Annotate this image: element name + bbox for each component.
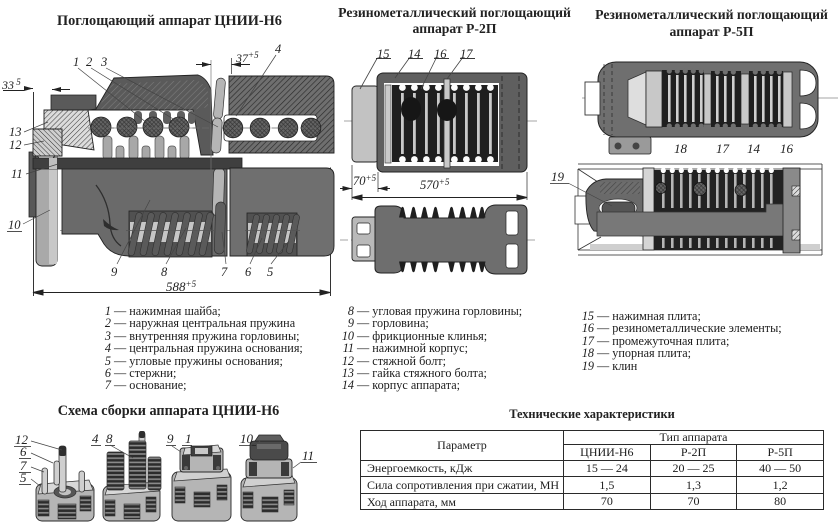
svg-text:18: 18 <box>674 141 688 156</box>
svg-text:3: 3 <box>100 55 107 69</box>
svg-text:8: 8 <box>106 431 113 446</box>
svg-text:16: 16 <box>780 141 794 156</box>
svg-text:14: 14 <box>747 141 761 156</box>
svg-text:9: 9 <box>167 431 174 446</box>
svg-text:11: 11 <box>302 448 314 463</box>
svg-text:2: 2 <box>86 55 92 69</box>
svg-text:8: 8 <box>161 265 168 279</box>
svg-text:10: 10 <box>240 431 254 446</box>
svg-text:6: 6 <box>245 265 252 279</box>
svg-text:4: 4 <box>92 431 99 446</box>
svg-text:5: 5 <box>20 470 27 485</box>
svg-text:1: 1 <box>73 55 79 69</box>
svg-text:588+5: 588+5 <box>166 279 197 294</box>
svg-text:11: 11 <box>11 167 23 181</box>
svg-text:7: 7 <box>221 265 228 279</box>
svg-text:4: 4 <box>275 42 281 56</box>
svg-text:17: 17 <box>716 141 730 156</box>
svg-text:12: 12 <box>9 138 22 152</box>
svg-text:5: 5 <box>267 265 273 279</box>
svg-text:1: 1 <box>185 431 192 446</box>
svg-text:9: 9 <box>111 265 118 279</box>
svg-text:10: 10 <box>8 218 21 232</box>
svg-text:19: 19 <box>551 169 565 184</box>
svg-text:570+5: 570+5 <box>420 177 450 192</box>
svg-text:13: 13 <box>9 125 22 139</box>
svg-text:70+5: 70+5 <box>353 173 377 188</box>
svg-text:6: 6 <box>20 444 27 459</box>
svg-text:33 5: 33 5 <box>1 77 21 92</box>
